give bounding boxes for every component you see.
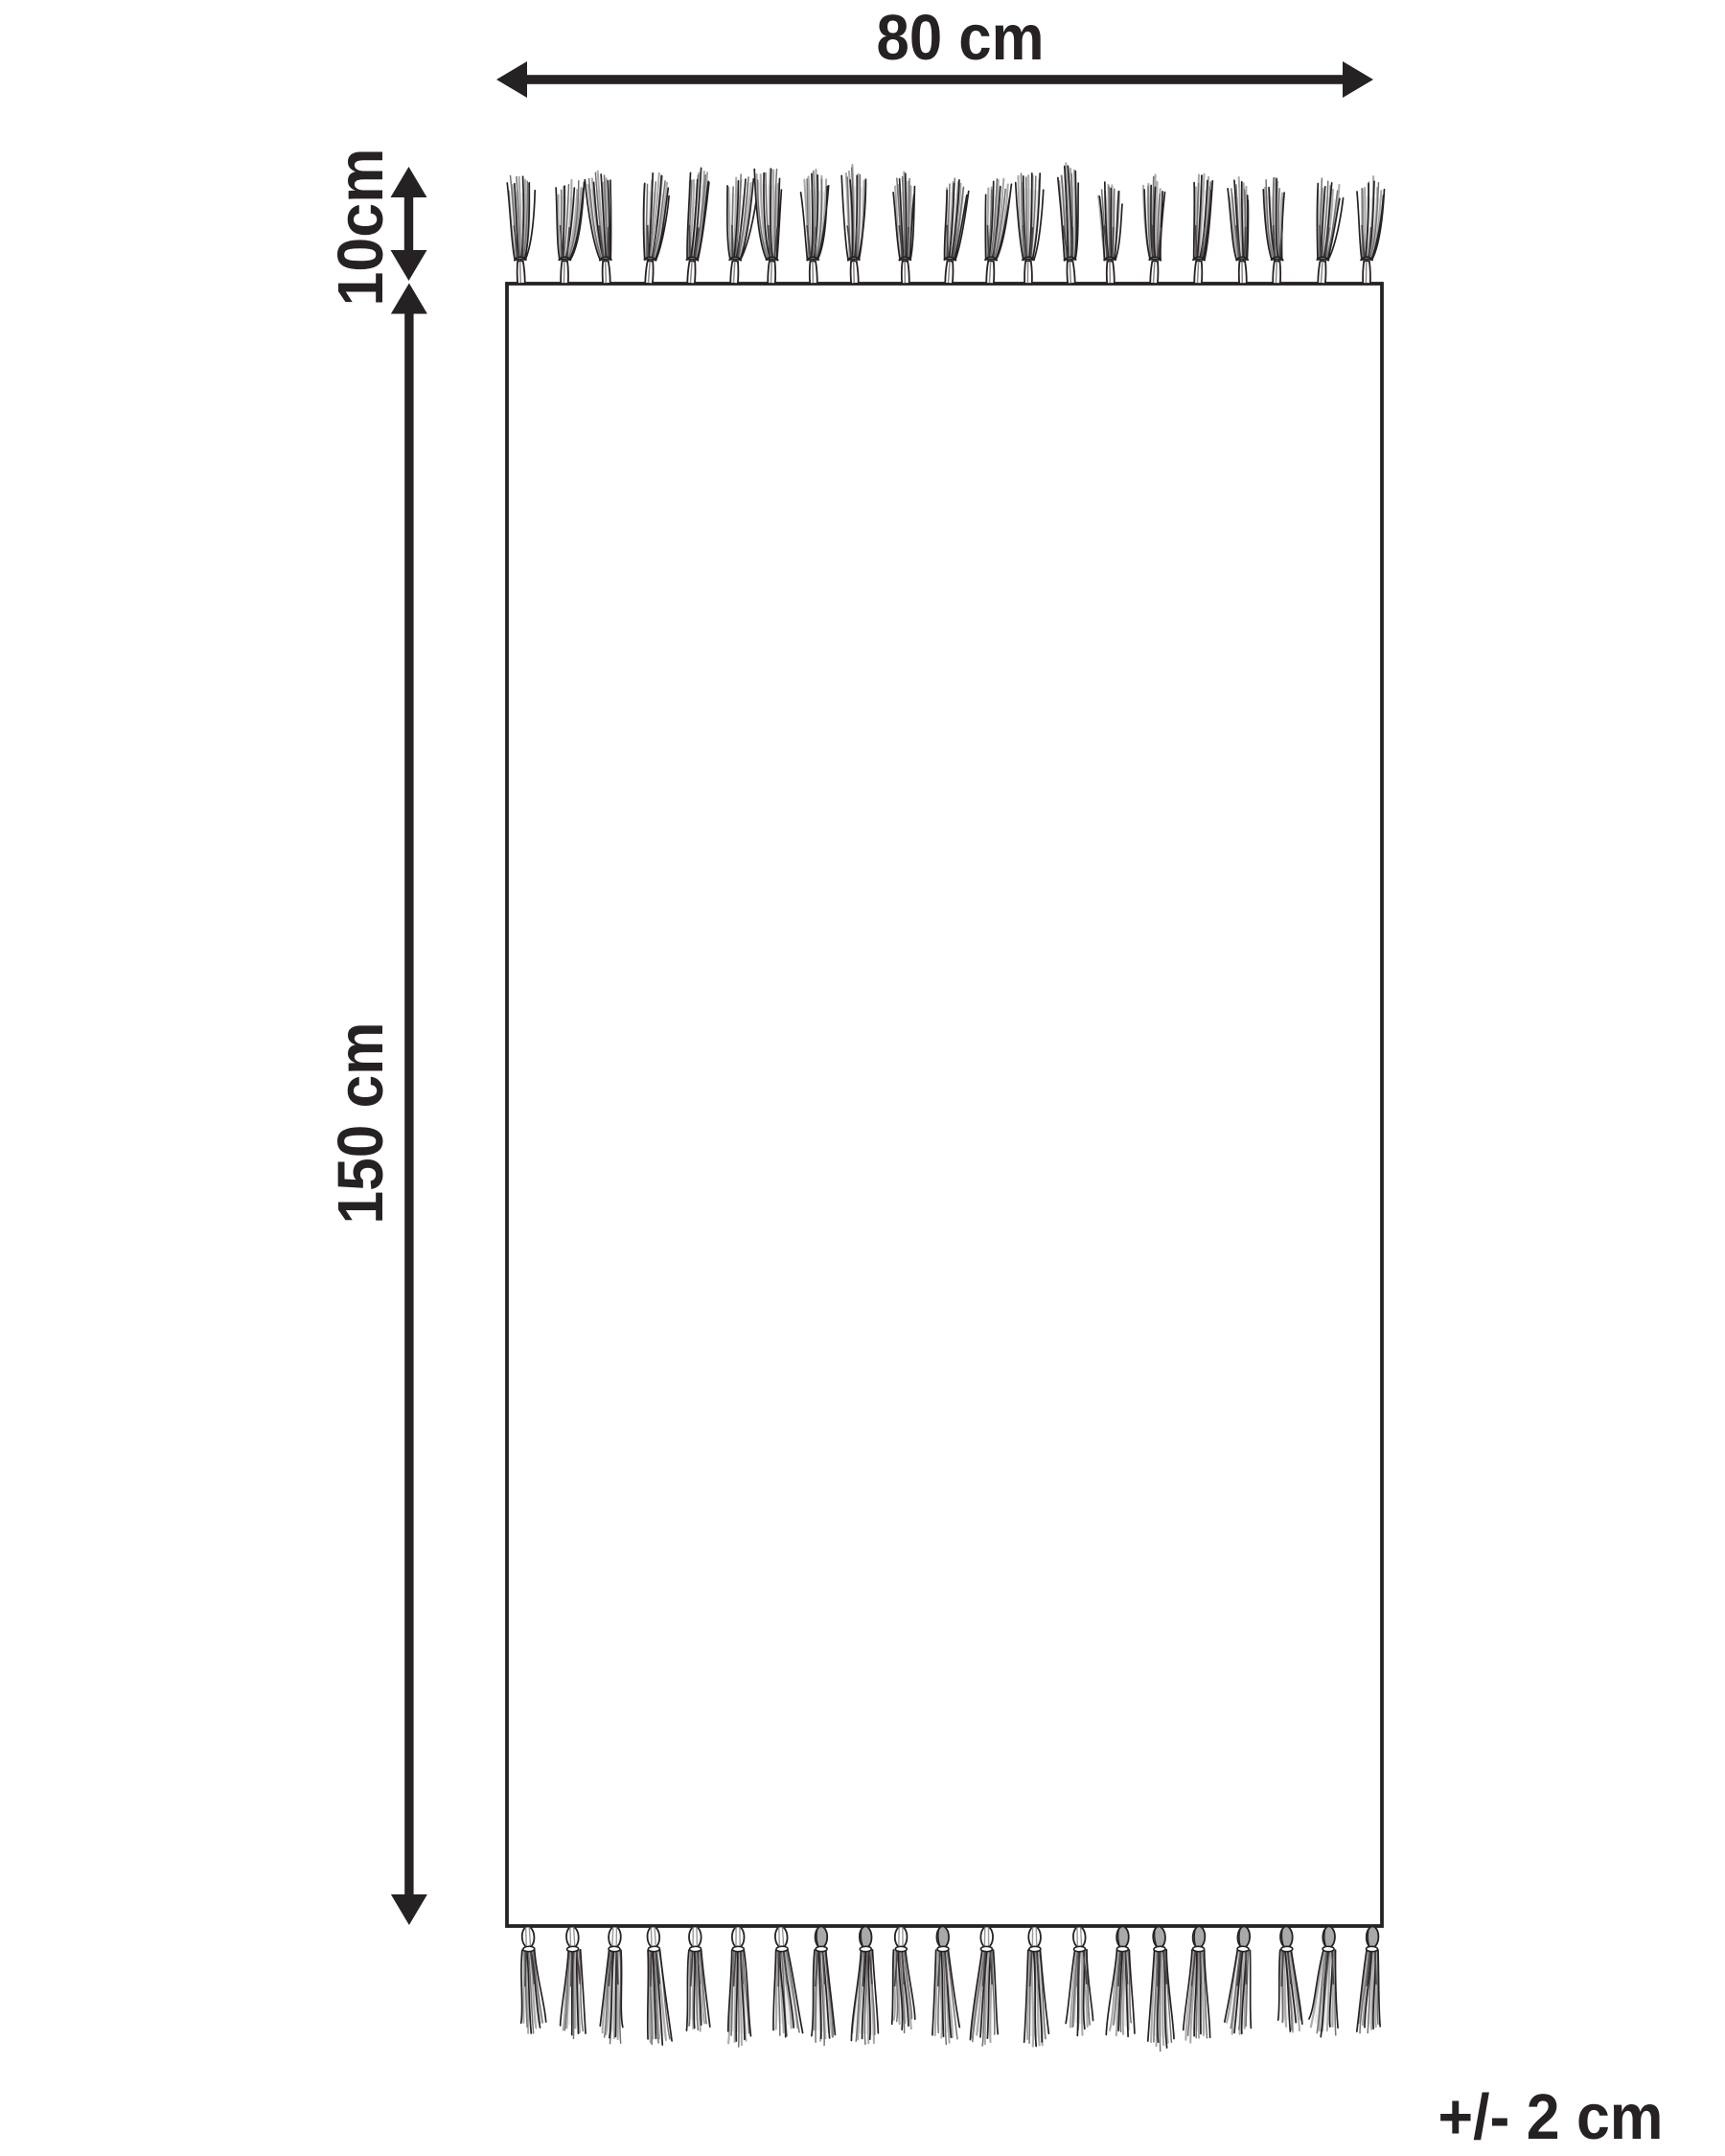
svg-text:10cm: 10cm <box>325 149 397 307</box>
svg-text:+/- 2 cm: +/- 2 cm <box>1438 2081 1664 2153</box>
svg-text:150 cm: 150 cm <box>325 1022 397 1225</box>
svg-text:80 cm: 80 cm <box>877 2 1045 74</box>
